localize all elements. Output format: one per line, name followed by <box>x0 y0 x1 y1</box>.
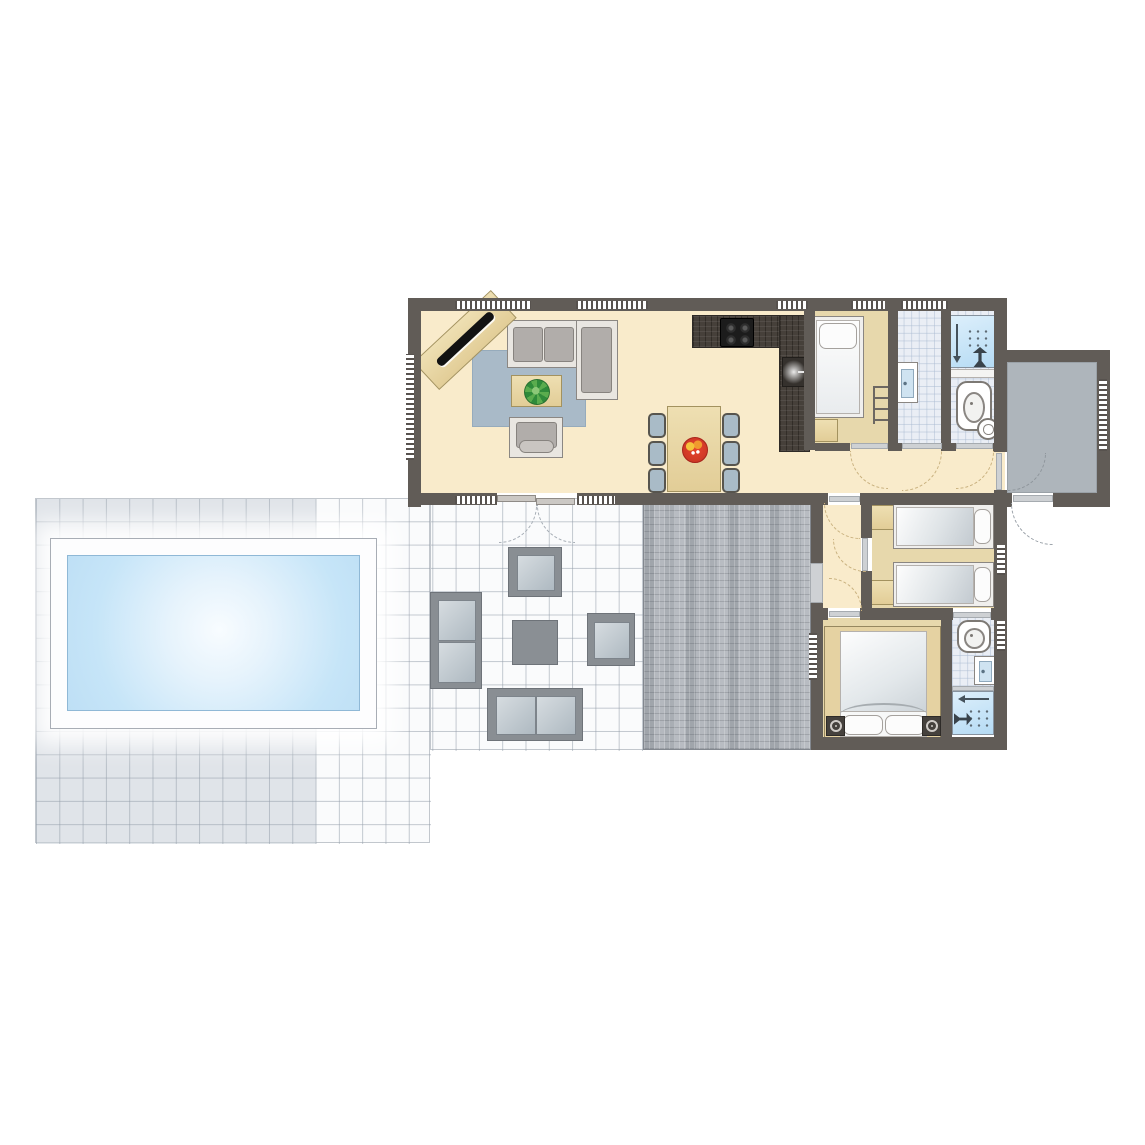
double-bed <box>824 626 941 738</box>
outdoor-chair-top <box>508 547 562 597</box>
door-threshold <box>851 443 888 449</box>
window-icon <box>901 301 948 309</box>
pillow <box>885 715 925 735</box>
window-icon <box>776 301 808 309</box>
armchair-front <box>519 440 554 453</box>
armchair <box>509 417 563 458</box>
mattress <box>896 565 974 604</box>
sliding-door-panel <box>497 495 536 502</box>
shower-head-icon <box>972 347 988 367</box>
outdoor-chair-right <box>587 613 635 666</box>
window-icon <box>455 496 497 504</box>
wall-master-bath-divider <box>941 618 952 738</box>
pillow <box>974 509 991 544</box>
shower <box>952 691 994 735</box>
entry-arrow-icon <box>961 698 989 700</box>
wall-twin-master-seg <box>860 608 953 620</box>
patio-window <box>810 563 823 603</box>
dining-chair <box>722 413 740 438</box>
washbasin <box>974 656 996 685</box>
twin-bed <box>893 504 994 549</box>
wall-wing-bottom <box>811 737 1007 750</box>
sofa-cushion <box>581 327 612 393</box>
wall-kitchen-divider <box>804 311 815 450</box>
door-threshold <box>1013 495 1053 502</box>
pillow <box>843 715 883 735</box>
outdoor-table <box>512 620 558 665</box>
sliding-door-panel <box>536 498 575 505</box>
wall-hall-seg <box>888 443 902 451</box>
wall-bed-bath-divider <box>888 311 898 450</box>
washbasin <box>896 362 918 403</box>
twin-bed <box>893 562 994 607</box>
sofa-cushion <box>544 327 574 362</box>
wall-bath-wc-divider <box>941 311 951 450</box>
sofa-cushion <box>513 327 543 362</box>
pillow <box>974 567 991 602</box>
window-icon <box>455 301 531 309</box>
window-icon <box>997 621 1005 651</box>
window-icon <box>577 496 615 504</box>
window-icon <box>1099 379 1107 451</box>
outdoor-cushion <box>438 600 476 641</box>
door-threshold <box>996 453 1002 490</box>
window-icon <box>997 545 1005 575</box>
wall-hall-seg <box>815 443 850 451</box>
dining-chair <box>722 468 740 493</box>
dining-chair <box>722 441 740 466</box>
dining-chair <box>648 441 666 466</box>
lamp-icon <box>922 716 941 736</box>
mattress <box>840 631 927 713</box>
shower <box>949 315 997 368</box>
spray-icon <box>966 328 992 350</box>
single-bed <box>812 316 864 418</box>
wall-storage-left-seg <box>994 362 1007 452</box>
door-threshold <box>829 611 860 617</box>
plant-icon <box>524 379 550 405</box>
window-icon <box>576 301 648 309</box>
patio-pavers <box>643 503 811 750</box>
pillow <box>819 323 857 349</box>
mattress <box>896 507 974 546</box>
outdoor-cushion <box>496 696 536 735</box>
stove-icon <box>720 318 754 347</box>
wall-wing-left-seg <box>811 493 823 563</box>
wall-storage-bottom-seg <box>1053 493 1097 507</box>
wall-twin-master-seg <box>811 608 828 620</box>
outdoor-cushion <box>536 696 576 735</box>
coffee-table <box>511 375 562 407</box>
wall-storage-top <box>1000 350 1110 362</box>
bath-shelf <box>949 369 997 378</box>
fruit-bowl-icon <box>682 437 708 463</box>
pool-water <box>67 555 360 711</box>
outdoor-cushion <box>438 642 476 683</box>
nightstand <box>869 580 894 605</box>
door-threshold <box>902 443 942 449</box>
basin-bowl <box>901 369 914 398</box>
entry-arrow-icon <box>956 324 958 360</box>
toilet <box>957 620 991 653</box>
outdoor-sofa-left <box>430 592 482 689</box>
wall-hall-seg <box>941 443 956 451</box>
outdoor-cushion <box>594 622 630 659</box>
wall-bottom-seg <box>860 493 1007 505</box>
dining-table <box>667 406 721 492</box>
window-icon <box>809 633 817 680</box>
floor-plan <box>0 0 1145 1145</box>
nightstand <box>869 505 894 530</box>
door-threshold <box>956 443 993 449</box>
window-icon <box>406 354 414 460</box>
door-swing-arc <box>1011 503 1053 545</box>
dining-chair <box>648 413 666 438</box>
door-threshold <box>953 612 991 618</box>
window-icon <box>851 301 885 309</box>
dining-chair <box>648 468 666 493</box>
basin-bowl <box>979 661 992 682</box>
wall-vhall-seg <box>861 505 872 538</box>
bedside-cabinet <box>812 419 838 442</box>
lamp-icon <box>826 716 845 736</box>
door-threshold <box>829 496 860 502</box>
wall-twin-master-seg <box>991 608 1007 620</box>
outdoor-cushion <box>517 555 555 591</box>
outdoor-sofa-bottom <box>487 688 583 741</box>
